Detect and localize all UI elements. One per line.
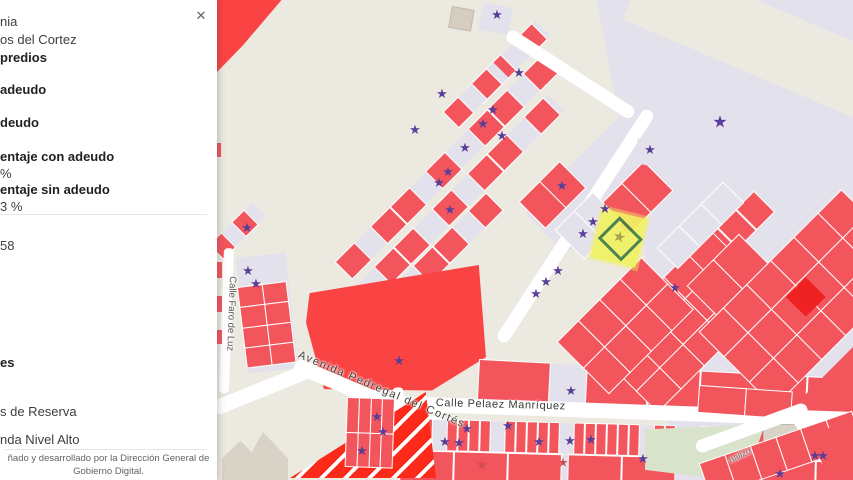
star-marker[interactable]: ★	[533, 435, 545, 448]
map-shape	[215, 0, 285, 78]
star-marker[interactable]: ★	[556, 179, 568, 192]
map-parcel	[245, 345, 271, 367]
map-parcel	[516, 422, 526, 452]
star-marker[interactable]: ★	[513, 66, 525, 79]
map-parcel	[698, 386, 745, 415]
star-marker[interactable]: ★	[377, 425, 389, 438]
map-parcel	[549, 423, 559, 453]
star-marker[interactable]: ★	[774, 467, 786, 480]
map-shape	[448, 6, 474, 32]
star-marker[interactable]: ★	[491, 8, 503, 21]
star-marker[interactable]: ★	[371, 410, 383, 423]
map-parcel	[240, 305, 266, 327]
map-shape	[238, 282, 295, 367]
attribution-line2: Gobierno Digital.	[0, 466, 217, 479]
map-parcel	[243, 325, 269, 347]
legend-item-reserva: s de Reserva	[0, 404, 77, 419]
map-parcel	[265, 302, 291, 324]
star-marker[interactable]: ★	[487, 103, 499, 116]
map-parcel	[568, 455, 621, 480]
attribution-text: ñado y desarrollado por la Dirección Gen…	[0, 453, 217, 478]
star-marker[interactable]: ★	[393, 354, 405, 367]
star-marker[interactable]: ★	[496, 129, 508, 142]
map-parcel	[267, 322, 293, 344]
star-marker[interactable]: ★	[558, 456, 569, 468]
colonia-label-fragment: nia	[0, 14, 17, 29]
close-icon[interactable]: ✕	[192, 7, 210, 25]
map-parcel	[607, 424, 617, 454]
map-shape	[222, 432, 288, 480]
colonia-name: os del Cortez	[0, 32, 77, 47]
legend-section-heading: es	[0, 355, 14, 370]
star-marker[interactable]: ★	[644, 143, 656, 156]
star-marker[interactable]: ★	[587, 215, 599, 228]
star-marker[interactable]: ★	[444, 203, 456, 216]
map-parcel	[262, 282, 288, 304]
star-marker[interactable]: ★	[552, 264, 564, 277]
star-marker[interactable]: ★	[409, 123, 421, 136]
star-marker[interactable]: ★	[712, 114, 727, 131]
star-marker[interactable]: ★	[433, 176, 445, 189]
star-marker[interactable]: ★	[565, 384, 577, 397]
star-marker[interactable]: ★	[637, 452, 649, 465]
star-marker[interactable]: ★	[477, 117, 489, 130]
map-parcel	[347, 398, 359, 432]
star-marker[interactable]: ★	[436, 87, 448, 100]
map-parcel	[359, 398, 371, 432]
star-marker[interactable]: ★	[476, 458, 488, 471]
porcentaje-sin-adeudo-label: entaje sin adeudo	[0, 182, 110, 197]
map-parcel	[508, 454, 561, 480]
star-marker[interactable]: ★	[241, 221, 253, 234]
star-marker[interactable]: ★	[459, 141, 471, 154]
map-parcel	[596, 424, 606, 454]
star-marker[interactable]: ★	[669, 281, 681, 294]
star-marker[interactable]: ★	[577, 227, 589, 240]
map-parcel	[270, 342, 296, 364]
street-label-faro-de-luz: Calle Faro de Luz	[224, 276, 238, 351]
predios-sin-adeudo-label: deudo	[0, 115, 39, 130]
star-marker[interactable]: ★	[439, 435, 451, 448]
porcentaje-con-adeudo-label: entaje con adeudo	[0, 149, 114, 164]
map-shape	[210, 203, 266, 259]
legend-item-vivienda-alto: nda Nivel Alto	[0, 432, 80, 447]
star-marker[interactable]: ★	[564, 434, 576, 447]
star-marker[interactable]: ★	[585, 433, 597, 446]
info-panel: ✕ nia os del Cortez predios adeudo deudo…	[0, 0, 217, 480]
star-marker[interactable]: ★	[502, 419, 514, 432]
star-marker[interactable]: ★	[250, 277, 262, 290]
star-marker[interactable]: ★	[599, 202, 611, 215]
map-parcel	[480, 421, 490, 451]
predios-con-adeudo-label: adeudo	[0, 82, 46, 97]
attribution-line1: ñado y desarrollado por la Dirección Gen…	[0, 453, 217, 466]
star-marker[interactable]: ★	[817, 449, 829, 462]
panel-divider	[0, 214, 207, 215]
porcentaje-con-adeudo-value: %	[0, 166, 12, 181]
footer-divider	[5, 449, 207, 450]
count-value-fragment: 58	[0, 238, 14, 253]
star-marker[interactable]: ★	[540, 275, 552, 288]
star-marker[interactable]: ★	[453, 436, 465, 449]
porcentaje-sin-adeudo-value: 3 %	[0, 199, 22, 214]
total-predios-heading: predios	[0, 50, 47, 65]
map-parcel	[618, 425, 628, 455]
star-marker[interactable]: ★	[530, 287, 542, 300]
star-marker[interactable]: ★	[356, 444, 368, 457]
